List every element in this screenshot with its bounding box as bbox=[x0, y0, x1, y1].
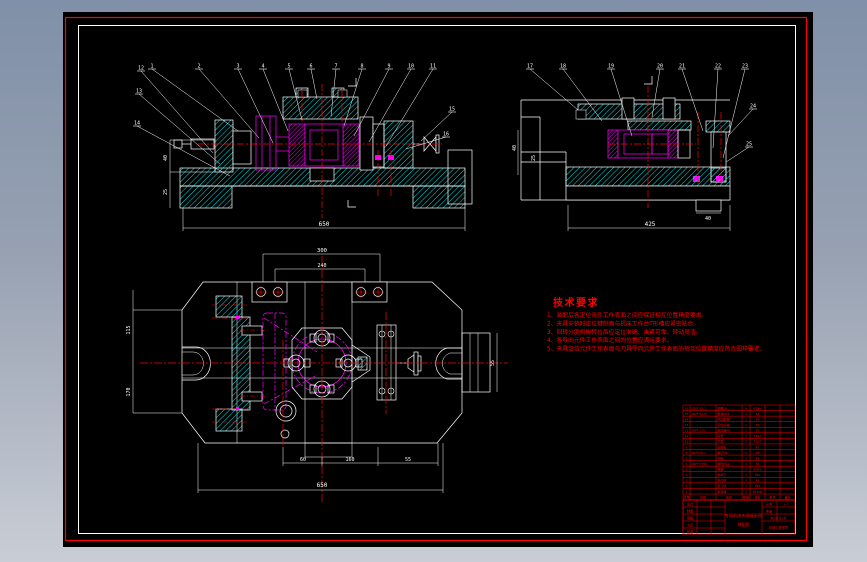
bom-cell: 4 bbox=[745, 412, 747, 416]
bom-cell: 压板 bbox=[717, 455, 723, 460]
balloon-number: 15 bbox=[449, 107, 455, 113]
bom-cell: 1 bbox=[745, 417, 747, 421]
bom-cell: 35 bbox=[756, 451, 760, 455]
bom-cell: 2 bbox=[686, 484, 688, 488]
bom-cell: 2 bbox=[745, 429, 747, 433]
weight-label: 重量 bbox=[766, 509, 772, 514]
bom-cell: 15 bbox=[685, 412, 689, 416]
bom-cell: T8A bbox=[754, 473, 762, 477]
bom-cell: 4 bbox=[686, 473, 688, 477]
bom-cell: 2 bbox=[745, 434, 747, 438]
bom-cell: 1 bbox=[686, 490, 688, 494]
balloon-number: 2 bbox=[197, 64, 200, 70]
balloon-number: 13 bbox=[136, 89, 142, 95]
bom-cell: 65Mn bbox=[753, 406, 761, 410]
bom-cell: 定位心轴 bbox=[717, 422, 729, 427]
dimension-label: 40 bbox=[163, 155, 169, 161]
bom-cell: 45 bbox=[756, 417, 760, 421]
bom-cell: 45 bbox=[756, 423, 760, 427]
bom-header-cell: 序号 bbox=[683, 494, 689, 499]
bom-cell: 1 bbox=[745, 484, 747, 488]
balloon-number: 1 bbox=[150, 64, 153, 70]
bom-cell: 开口垫圈 bbox=[717, 416, 729, 421]
tech-requirement-item: 2、夹具安装时定位键侧面与机床工作台T形槽应紧密贴合。 bbox=[547, 319, 699, 327]
balloon-number: 20 bbox=[657, 64, 663, 70]
dimension-label: 300 bbox=[317, 248, 327, 254]
bom-cell: 钻套 bbox=[717, 433, 723, 438]
bom-cell: 1 bbox=[745, 490, 747, 494]
bom-cell: 螺栓M12 bbox=[717, 461, 729, 466]
dimension-label: 40 bbox=[512, 145, 518, 151]
bom-cell: 1 bbox=[745, 445, 747, 449]
bom-cell: 螺母M16 bbox=[717, 411, 729, 416]
cad-window: 650 40 25 bbox=[0, 0, 867, 562]
bom-cell: GB/T 6170 bbox=[691, 412, 707, 416]
bom-cell: 45 bbox=[756, 445, 760, 449]
balloon-number: 4 bbox=[261, 64, 264, 70]
bom-cell: 8 bbox=[686, 451, 688, 455]
bom-cell: 钻模板 bbox=[717, 444, 726, 449]
balloon-number: 14 bbox=[134, 121, 140, 127]
bom-cell: 14 bbox=[685, 417, 689, 421]
bom-cell: 4 bbox=[745, 473, 747, 477]
bom-cell: 2 bbox=[745, 468, 747, 472]
dimension-label: 55 bbox=[490, 360, 496, 366]
bom-header-cell: 名称 bbox=[726, 494, 732, 499]
bom-header-cell: 单件 bbox=[769, 494, 775, 499]
balloon-number: 19 bbox=[608, 64, 614, 70]
bom-cell: 2 bbox=[745, 462, 747, 466]
bom-cell: 5 bbox=[686, 468, 688, 472]
tech-requirement-item: 3、回转分度机构转位后应定位准确、夹紧可靠、转动灵活。 bbox=[547, 328, 701, 336]
dimension-label: 160 bbox=[345, 457, 354, 463]
company-name: 机械工程学院 bbox=[769, 525, 789, 530]
title-block-row-label: 审核 bbox=[687, 516, 694, 521]
dimension-label: 650 bbox=[319, 221, 330, 228]
balloon-number: 10 bbox=[408, 64, 414, 70]
bom-cell: 6 bbox=[686, 462, 688, 466]
bom-cell: 45 bbox=[756, 462, 760, 466]
bom-cell: 2 bbox=[745, 456, 747, 460]
bom-cell: GB/T 70.1 bbox=[691, 451, 706, 455]
bom-cell: T10A bbox=[753, 440, 763, 444]
tech-requirement-item: 4、各导向元件工作表面之间的位置应满足要求。 bbox=[547, 336, 672, 344]
balloon-number: 12 bbox=[138, 66, 144, 72]
bom-cell: 对刀块 bbox=[717, 483, 726, 488]
balloon-number: 24 bbox=[750, 104, 756, 110]
bom-cell: 螺钉M8 bbox=[717, 450, 728, 455]
dimension-label: 60 bbox=[300, 457, 306, 463]
balloon-number: 8 bbox=[360, 64, 363, 70]
bom-cell: 16 bbox=[685, 406, 689, 410]
dimension-label: 40 bbox=[705, 216, 711, 222]
bom-cell: 3 bbox=[686, 479, 688, 483]
balloon-number: 21 bbox=[679, 64, 685, 70]
bom-cell: 35 bbox=[756, 429, 760, 433]
dimension-label: 55 bbox=[405, 457, 411, 463]
balloon-number: 16 bbox=[443, 132, 449, 138]
bom-cell: 10 bbox=[685, 440, 689, 444]
bom-cell: 2 bbox=[745, 479, 747, 483]
bom-cell: 衬套 bbox=[717, 439, 723, 444]
bom-cell: T10A bbox=[753, 434, 763, 438]
bom-cell: 弹簧 bbox=[717, 467, 723, 472]
bom-cell: 65Mn bbox=[753, 468, 761, 472]
title-block-row-label: 制图 bbox=[687, 509, 693, 514]
bom-cell: 夹具体 bbox=[717, 489, 726, 494]
bom-cell: 45 bbox=[756, 479, 760, 483]
dimension-label: 170 bbox=[126, 387, 132, 396]
bom-header-cell: 代号 bbox=[700, 494, 706, 499]
balloon-number: 23 bbox=[742, 64, 748, 70]
bom-cell: 2 bbox=[745, 440, 747, 444]
bom-cell: 45 bbox=[756, 412, 760, 416]
bom-cell: GB/T 119 bbox=[691, 429, 705, 433]
bom-cell: 1 bbox=[745, 423, 747, 427]
bom-cell: 定位键 bbox=[717, 478, 726, 483]
title-block-row-label: 设计 bbox=[687, 502, 694, 507]
bom-cell: 11 bbox=[685, 434, 689, 438]
dimension-label: 425 bbox=[645, 221, 656, 228]
tech-requirement-item: 1、装配后各定位元件工作表面之间应保证相互位置精度要求。 bbox=[547, 311, 707, 319]
balloon-number: 11 bbox=[430, 64, 436, 70]
dimension-label: 25 bbox=[531, 155, 537, 161]
balloon-number: 25 bbox=[746, 142, 752, 148]
dimension-label: 650 bbox=[317, 482, 328, 489]
balloon-number: 3 bbox=[236, 64, 239, 70]
balloon-number: 17 bbox=[527, 64, 533, 70]
title-block-row-label: 工艺 bbox=[687, 523, 693, 528]
bom-cell: 6 bbox=[745, 451, 747, 455]
bom-cell: T8A bbox=[754, 484, 762, 488]
drawing-title: 专用机床夹具装配图 bbox=[725, 512, 763, 519]
bom-header-cell: 材料 bbox=[754, 494, 760, 499]
bom-cell: 垫圈16 bbox=[717, 405, 727, 410]
bom-header-cell: 备注 bbox=[784, 494, 790, 499]
bom-cell: GB/T 5782 bbox=[691, 462, 707, 466]
dimension-label: 25 bbox=[163, 189, 169, 195]
tech-requirements-title: 技术要求 bbox=[553, 296, 599, 309]
drawing-subtitle: 装配图 bbox=[738, 521, 750, 527]
balloon-number: 9 bbox=[387, 64, 390, 70]
drawing-canvas[interactable] bbox=[63, 12, 813, 547]
balloon-number: 5 bbox=[287, 64, 290, 70]
balloon-number: 6 bbox=[309, 64, 312, 70]
sheet-count: 共1张 第1张 bbox=[771, 517, 787, 521]
title-block-row-label: 批准 bbox=[687, 529, 694, 534]
bom-cell: HT200 bbox=[753, 490, 763, 494]
bom-cell: 支承钉 bbox=[717, 472, 726, 477]
bom-header-cell: 数量 bbox=[743, 494, 749, 499]
tech-requirement-item: 5、夹具定位元件工作表面与刀具导向元件工作表面的相互位置精度应符合图样要求。 bbox=[547, 345, 765, 353]
bom-cell: 13 bbox=[685, 423, 689, 427]
scale-value: 1:1 bbox=[783, 503, 789, 507]
balloon-number: 18 bbox=[560, 64, 566, 70]
bom-cell: 12 bbox=[685, 429, 689, 433]
balloon-number: 7 bbox=[334, 64, 337, 70]
bom-cell: 4 bbox=[745, 406, 747, 410]
bom-cell: 定位销A8 bbox=[717, 428, 730, 433]
scale-label: 比例 bbox=[766, 502, 772, 507]
bom-cell: 9 bbox=[686, 445, 688, 449]
balloon-number: 22 bbox=[715, 64, 721, 70]
bom-cell: 7 bbox=[686, 456, 688, 460]
bom-cell: GB/T 97.1 bbox=[691, 406, 706, 410]
bom-cell: 45 bbox=[756, 456, 760, 460]
drawing-sheet: 650 40 25 bbox=[0, 0, 867, 562]
dimension-label: 115 bbox=[126, 325, 132, 334]
